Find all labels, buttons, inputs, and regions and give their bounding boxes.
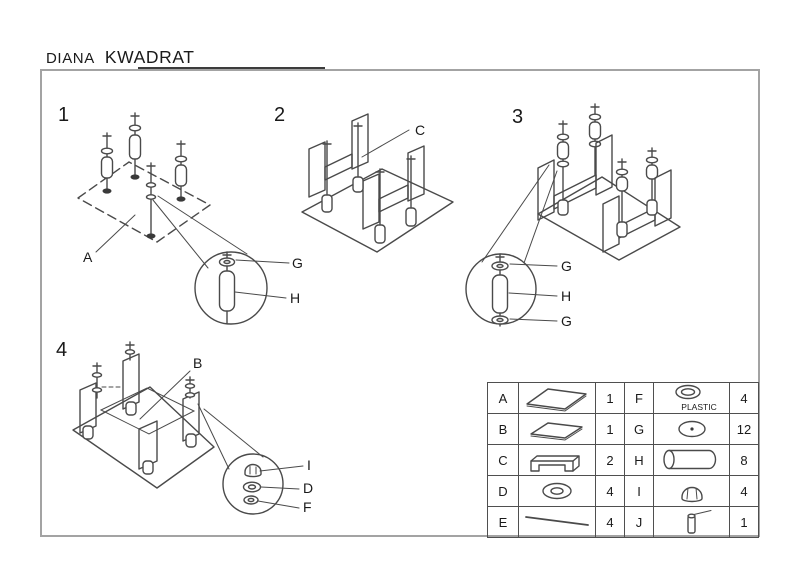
part-letter-cell: E xyxy=(488,507,519,538)
glass-shelf-icon xyxy=(522,415,592,443)
u-bracket-icon xyxy=(522,446,592,474)
part-qty-cell: 4 xyxy=(596,476,625,507)
assembly-key-icon xyxy=(657,508,727,536)
part-icon-cell xyxy=(519,383,596,414)
part-icon-cell xyxy=(519,507,596,538)
part-icon-cell xyxy=(519,445,596,476)
part-letter-cell: D xyxy=(488,476,519,507)
part-letter-cell: F xyxy=(625,383,654,414)
title-model: DIANA xyxy=(46,50,95,67)
part-qty-cell: 1 xyxy=(596,383,625,414)
part-qty-cell: 4 xyxy=(730,476,759,507)
dome-cap-nut-icon xyxy=(657,477,727,505)
part-letter-cell: H xyxy=(625,445,654,476)
part-letter-cell: J xyxy=(625,507,654,538)
parts-table: A 1 F PLASTIC 4 B 1 G 12 xyxy=(487,382,759,538)
parts-row: B 1 G 12 xyxy=(488,414,759,445)
spacer-tube-icon xyxy=(657,446,727,474)
part-qty-cell: 8 xyxy=(730,445,759,476)
threaded-rod-icon xyxy=(522,508,592,536)
part-qty-cell: 2 xyxy=(596,445,625,476)
parts-row: A 1 F PLASTIC 4 xyxy=(488,383,759,414)
part-icon-cell xyxy=(519,414,596,445)
disc-washer-icon xyxy=(657,415,727,443)
part-qty-cell: 12 xyxy=(730,414,759,445)
title-variant: KWADRAT xyxy=(105,47,195,68)
plastic-note: PLASTIC xyxy=(681,402,716,412)
part-icon-cell xyxy=(654,507,730,538)
part-qty-cell: 4 xyxy=(730,383,759,414)
part-icon-cell xyxy=(654,445,730,476)
washer-ring-icon xyxy=(522,477,592,505)
part-icon-cell xyxy=(654,414,730,445)
part-letter-cell: C xyxy=(488,445,519,476)
part-qty-cell: 1 xyxy=(730,507,759,538)
parts-row: E 4 J 1 xyxy=(488,507,759,538)
part-qty-cell: 1 xyxy=(596,414,625,445)
part-icon-cell xyxy=(519,476,596,507)
part-qty-cell: 4 xyxy=(596,507,625,538)
parts-row: D 4 I 4 xyxy=(488,476,759,507)
glass-top-icon xyxy=(522,384,592,412)
plastic-washer-icon: PLASTIC xyxy=(655,383,729,413)
part-icon-cell: PLASTIC xyxy=(654,383,730,414)
page-title: DIANA KWADRAT xyxy=(46,47,195,68)
parts-row: C 2 H 8 xyxy=(488,445,759,476)
part-letter-cell: B xyxy=(488,414,519,445)
part-icon-cell xyxy=(654,476,730,507)
part-letter-cell: A xyxy=(488,383,519,414)
part-letter-cell: I xyxy=(625,476,654,507)
part-letter-cell: G xyxy=(625,414,654,445)
